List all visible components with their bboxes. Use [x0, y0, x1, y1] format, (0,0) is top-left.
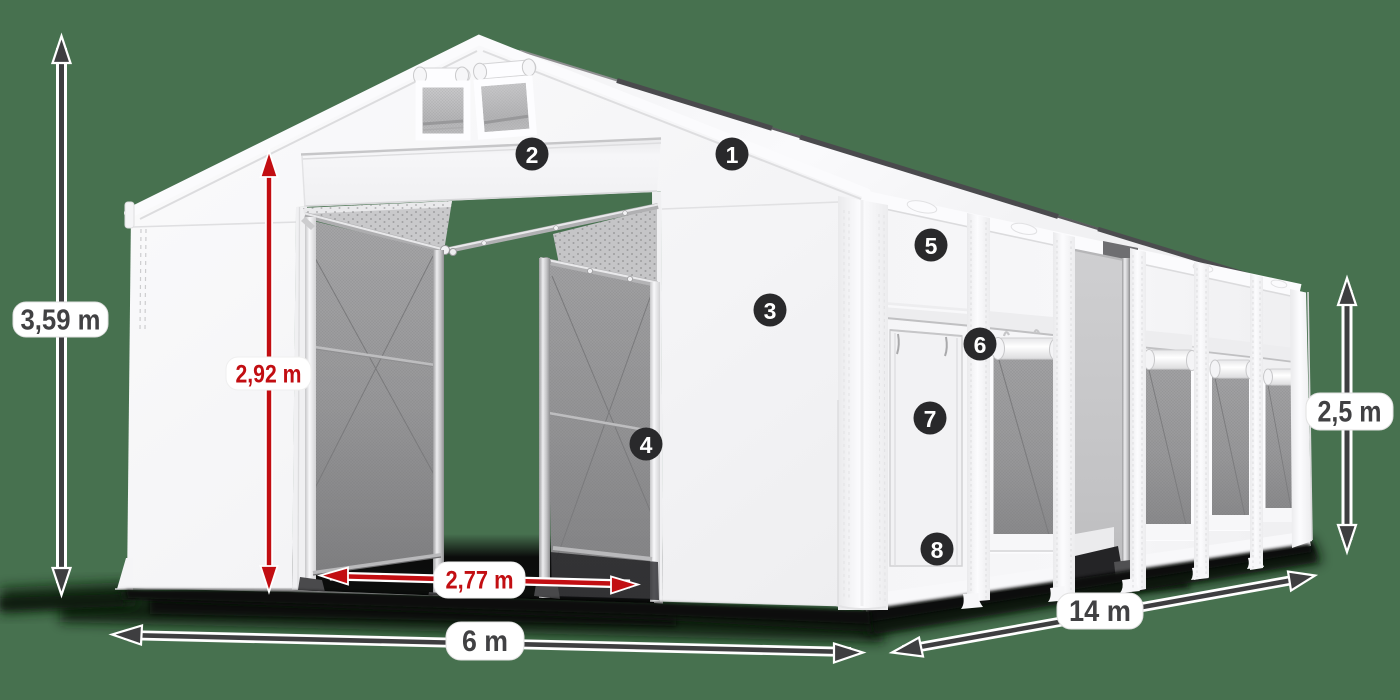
- svg-text:8: 8: [931, 537, 944, 563]
- svg-text:14 m: 14 m: [1069, 595, 1131, 628]
- svg-text:5: 5: [925, 233, 938, 259]
- svg-text:6 m: 6 m: [462, 625, 508, 658]
- svg-text:2: 2: [526, 142, 539, 168]
- svg-text:2,5 m: 2,5 m: [1318, 396, 1382, 429]
- svg-text:3: 3: [764, 298, 777, 324]
- svg-text:3,59 m: 3,59 m: [21, 305, 101, 337]
- svg-text:7: 7: [924, 406, 937, 432]
- svg-text:2,77 m: 2,77 m: [446, 567, 514, 595]
- svg-text:6: 6: [974, 332, 987, 358]
- svg-text:1: 1: [726, 142, 739, 168]
- svg-text:2,92 m: 2,92 m: [236, 361, 302, 389]
- svg-text:4: 4: [640, 432, 653, 458]
